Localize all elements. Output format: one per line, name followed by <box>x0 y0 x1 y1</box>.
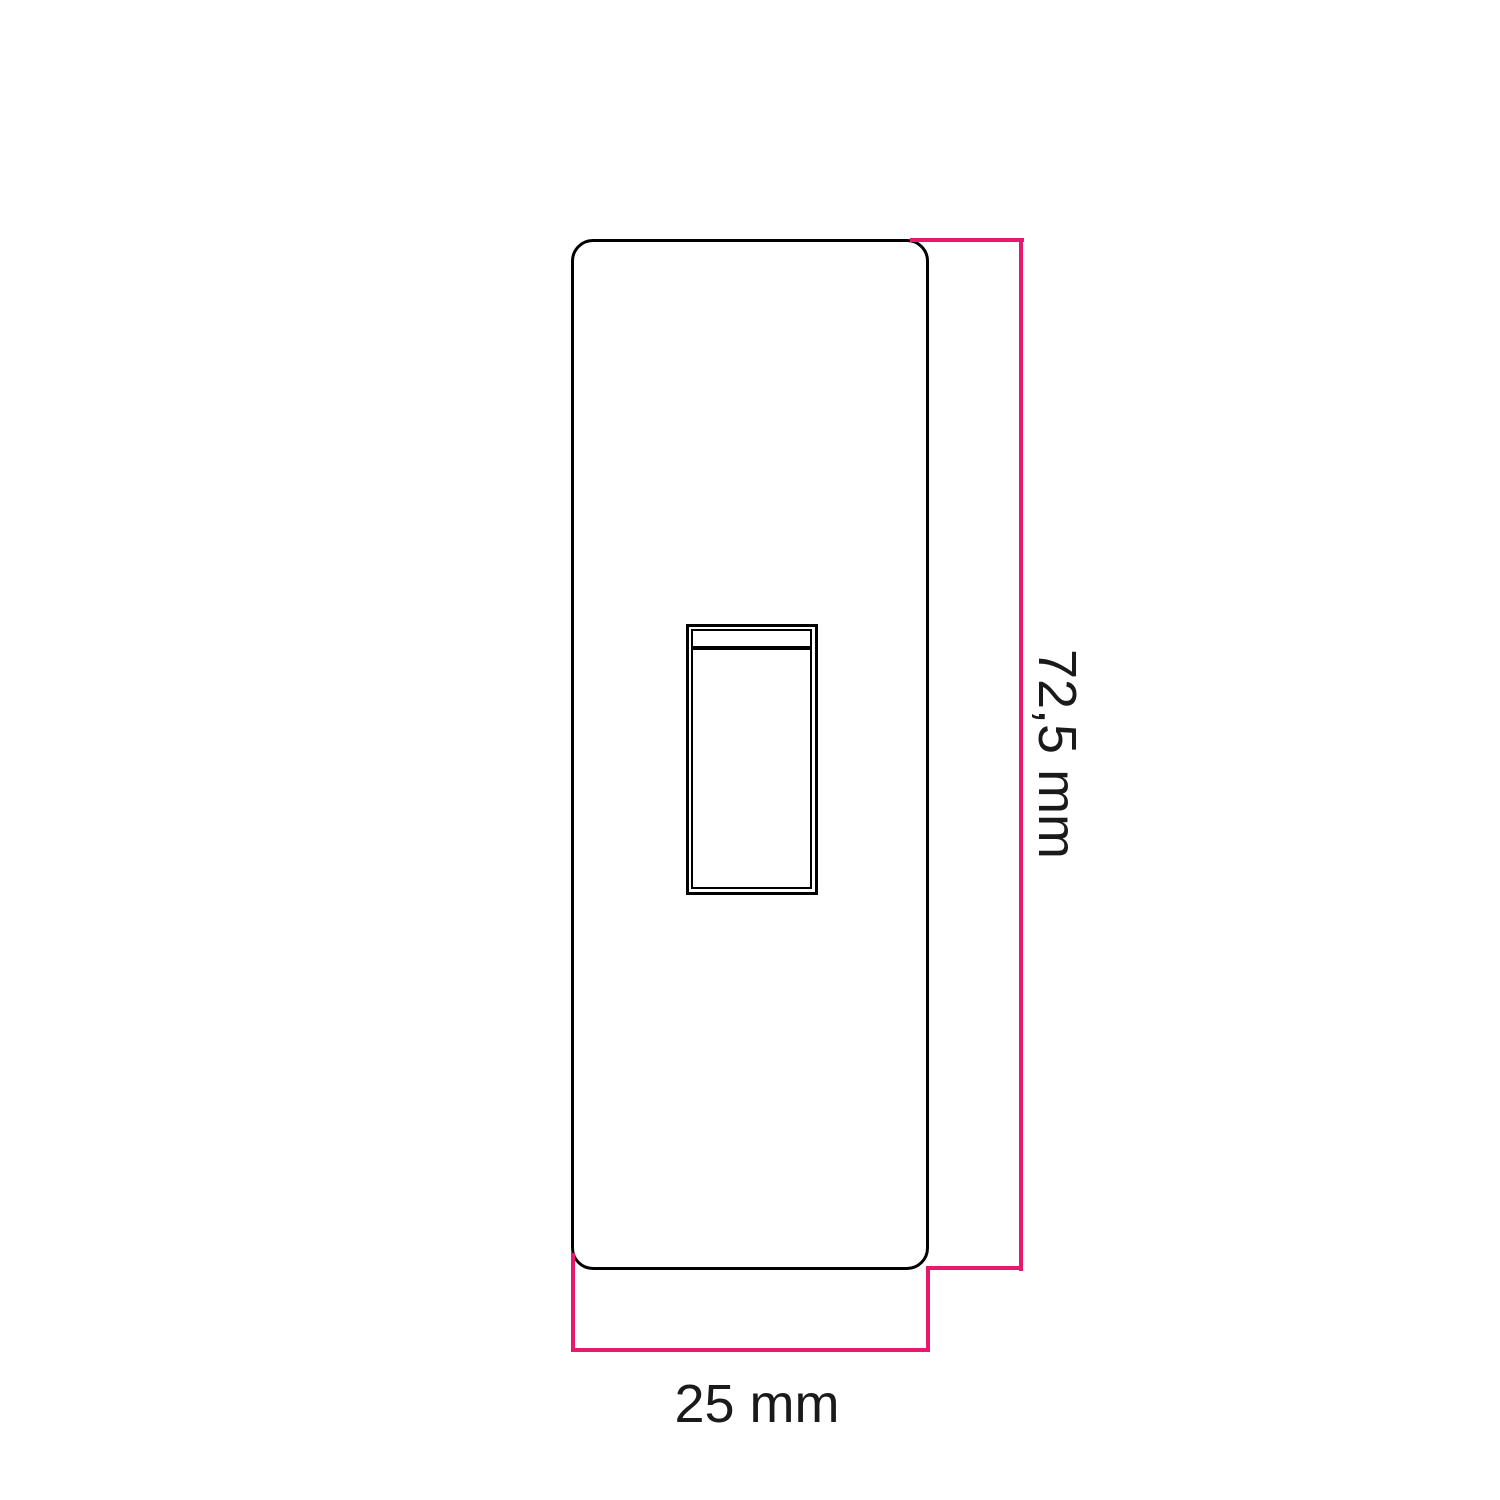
height-dimension-label: 72,5 mm <box>1030 649 1084 859</box>
diagram-canvas: 72,5 mm 25 mm <box>0 0 1500 1500</box>
width-dimension-label: 25 mm <box>674 1377 839 1431</box>
switch-cutout-inner <box>691 629 812 889</box>
height-dimension-line <box>1019 238 1023 1271</box>
switch-rocker-line <box>693 646 810 650</box>
width-dimension-right-extension-line <box>926 1266 930 1352</box>
height-dimension-top-extension-line <box>910 238 1024 242</box>
width-dimension-line <box>571 1348 930 1352</box>
height-dimension-bottom-extension-line <box>926 1266 1023 1270</box>
width-dimension-left-extension-line <box>571 1253 575 1352</box>
